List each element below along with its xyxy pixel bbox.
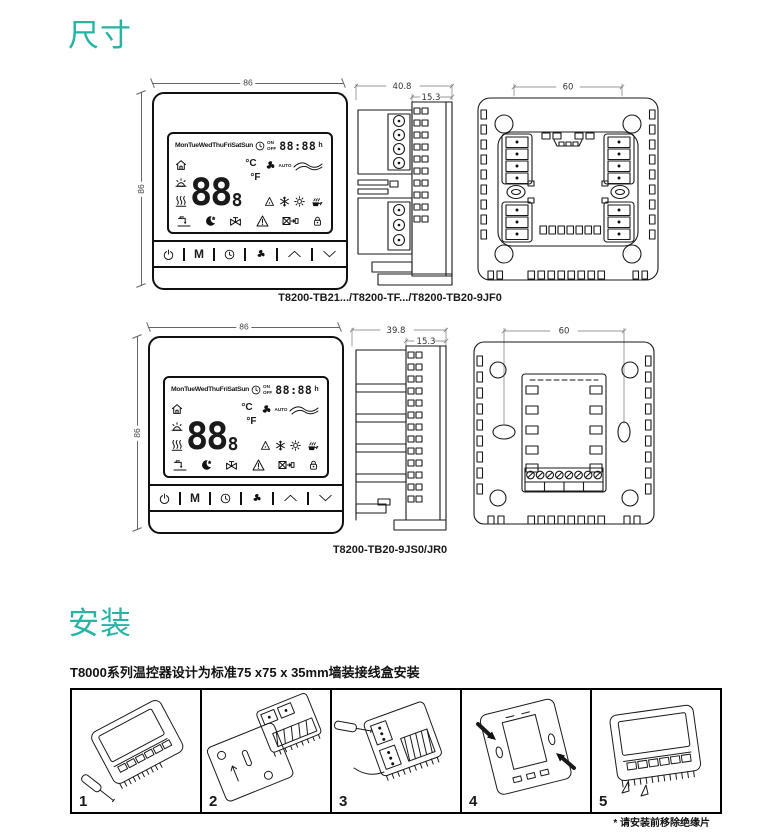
- width-dimension-label: 86: [236, 323, 251, 332]
- on-off-labels: ONOFF: [267, 140, 276, 151]
- right-status-icons: AUTO: [260, 402, 321, 452]
- valve-icon: [225, 459, 238, 471]
- button-bar: M: [154, 240, 346, 268]
- kettle-steam-icon: [305, 440, 319, 451]
- dimension-height-line: 86: [135, 92, 147, 286]
- svg-text:60: 60: [559, 327, 570, 337]
- hot-water-icon: [173, 459, 187, 471]
- installation-footnote: * 请安装前移除绝缘片: [70, 814, 710, 829]
- model-caption-row1: T8200-TB21.../T8200-TF.../T8200-TB20-9JF…: [120, 292, 660, 304]
- hour-unit-label: h: [318, 142, 322, 149]
- lcd-top-row: MonTueWedThuFriSatSun ONOFF 88:88 h: [171, 382, 321, 397]
- dimension-height-line: 86: [131, 336, 143, 530]
- lcd-main-row: 888 °C °F AUTO: [171, 402, 321, 452]
- outdoor-sun-icon: [171, 421, 183, 433]
- outdoor-sun-icon: [175, 177, 187, 189]
- installation-section-title: 安装: [68, 598, 132, 643]
- arrow-down-icon: [318, 494, 333, 502]
- cooling-triangle-icon: [264, 196, 275, 207]
- datasheet-page: 尺寸 86 86 MonTueWedThuFriSatSun ONOFF 88:…: [0, 0, 770, 835]
- weekday-labels: MonTueWedThuFriSatSun: [171, 386, 249, 393]
- temperature-digits: 888: [190, 158, 242, 208]
- arrow-up-icon: [287, 250, 302, 258]
- filter-clean-icon: [282, 215, 299, 227]
- power-icon: [159, 493, 170, 504]
- room-icon: [171, 403, 183, 415]
- sleep-moon-icon: [200, 459, 212, 471]
- step-number: 4: [469, 793, 477, 810]
- arrow-down-icon: [322, 250, 337, 258]
- svg-text:39.8: 39.8: [387, 326, 406, 336]
- installation-step-2: 2: [200, 688, 332, 814]
- thermostat-front-view: 86 86 MonTueWedThuFriSatSun ONOFF 88:88 …: [134, 76, 350, 292]
- keylock-icon: [308, 459, 319, 471]
- height-dimension-label: 86: [133, 425, 142, 440]
- fahrenheit-label: °F: [250, 173, 260, 183]
- clock-icon: [251, 385, 261, 395]
- step-number: 3: [339, 793, 347, 810]
- warning-icon: [252, 459, 265, 471]
- heating-icon: [171, 439, 183, 451]
- lcd-display: MonTueWedThuFriSatSun ONOFF 88:88 h: [167, 132, 333, 234]
- temperature-digits: 888: [186, 402, 238, 452]
- room-icon: [175, 159, 187, 171]
- svg-text:60: 60: [563, 83, 574, 93]
- hour-unit-label: h: [314, 386, 318, 393]
- installation-description: T8000系列温控器设计为标准75 x75 x 35mm墙装接线盒安装: [70, 662, 420, 681]
- filter-clean-icon: [278, 459, 295, 471]
- dimension-row-1: 86 86 MonTueWedThuFriSatSun ONOFF 88:88 …: [134, 76, 666, 294]
- snowflake-icon: [279, 196, 290, 207]
- step1-drawing: [72, 690, 200, 812]
- sleep-moon-icon: [204, 215, 216, 227]
- lcd-top-row: MonTueWedThuFriSatSun ONOFF 88:88 h: [175, 138, 325, 153]
- installation-step-4: 4: [460, 688, 592, 814]
- front-view-slot-1: 86 86 MonTueWedThuFriSatSun ONOFF 88:88 …: [134, 76, 350, 292]
- side-view-row2: 39.8 15.3: [350, 320, 454, 538]
- valve-icon: [229, 215, 242, 227]
- warning-icon: [256, 215, 269, 227]
- back-view-row1: 60: [470, 76, 666, 290]
- kettle-steam-icon: [309, 196, 323, 207]
- clock-icon: [220, 493, 231, 504]
- on-off-labels: ONOFF: [263, 384, 272, 395]
- mode-button-label: M: [194, 247, 204, 261]
- fahrenheit-label: °F: [246, 417, 256, 427]
- celsius-label: °C: [245, 159, 260, 169]
- hot-water-icon: [177, 215, 191, 227]
- installation-step-3: 3: [330, 688, 462, 814]
- fan-icon: [255, 248, 267, 260]
- arrow-up-icon: [283, 494, 298, 502]
- dimension-width-line: 86: [148, 321, 340, 333]
- fan-icon: [264, 159, 277, 172]
- cooling-triangle-icon: [260, 440, 271, 451]
- front-view-slot-2: 86 86 MonTueWedThuFriSatSun ONOFF 88:88 …: [130, 320, 346, 536]
- left-status-icons: [171, 402, 186, 452]
- lcd-main-row: 888 °C °F AUTO: [175, 158, 325, 208]
- temperature-units: °C °F: [245, 159, 260, 208]
- fan-icon: [251, 492, 263, 504]
- right-status-icons: AUTO: [264, 158, 325, 208]
- installation-steps: 1 2: [70, 688, 722, 814]
- clock-icon: [224, 249, 235, 260]
- step2-drawing: [202, 690, 330, 812]
- airflow-icon: [293, 160, 323, 172]
- clock-icon: [255, 141, 265, 151]
- thermostat-housing: MonTueWedThuFriSatSun ONOFF 88:88 h: [148, 336, 344, 534]
- time-digits: 88:88: [279, 139, 316, 153]
- step-number: 5: [599, 793, 607, 810]
- height-dimension-label: 86: [137, 181, 146, 196]
- lcd-bottom-row: [171, 457, 321, 472]
- time-digits: 88:88: [275, 383, 312, 397]
- sun-icon: [290, 440, 301, 451]
- auto-label: AUTO: [275, 407, 288, 412]
- weekday-labels: MonTueWedThuFriSatSun: [175, 142, 253, 149]
- keylock-icon: [312, 215, 323, 227]
- installation-step-1: 1: [70, 688, 202, 814]
- dimension-width-line: 86: [152, 77, 344, 89]
- back-view-row2: 60: [466, 320, 662, 534]
- mode-button-label: M: [190, 491, 200, 505]
- dimensions-section-title: 尺寸: [68, 10, 132, 55]
- snowflake-icon: [275, 440, 286, 451]
- step4-drawing: [462, 690, 590, 812]
- thermostat-housing: MonTueWedThuFriSatSun ONOFF 88:88 h: [152, 92, 348, 290]
- step-number: 1: [79, 793, 87, 810]
- celsius-label: °C: [241, 403, 256, 413]
- temperature-units: °C °F: [241, 403, 256, 452]
- step-number: 2: [209, 793, 217, 810]
- left-status-icons: [175, 158, 190, 208]
- auto-label: AUTO: [279, 163, 292, 168]
- thermostat-front-view: 86 86 MonTueWedThuFriSatSun ONOFF 88:88 …: [130, 320, 346, 536]
- svg-text:40.8: 40.8: [393, 82, 412, 92]
- installation-step-5: 5: [590, 688, 722, 814]
- step3-drawing: [332, 690, 460, 812]
- dimension-row-2: 86 86 MonTueWedThuFriSatSun ONOFF 88:88 …: [130, 320, 662, 538]
- step5-drawing: [592, 690, 720, 812]
- lcd-bottom-row: [175, 213, 325, 228]
- side-view-row1: 40.8 15.3: [354, 76, 458, 294]
- lcd-display: MonTueWedThuFriSatSun ONOFF 88:88 h: [163, 376, 329, 478]
- model-caption-row2: T8200-TB20-9JS0/JR0: [120, 544, 660, 556]
- button-bar: M: [150, 484, 342, 512]
- airflow-icon: [289, 404, 319, 416]
- width-dimension-label: 86: [240, 79, 255, 88]
- heating-icon: [175, 195, 187, 207]
- fan-icon: [260, 403, 273, 416]
- power-icon: [163, 249, 174, 260]
- sun-icon: [294, 196, 305, 207]
